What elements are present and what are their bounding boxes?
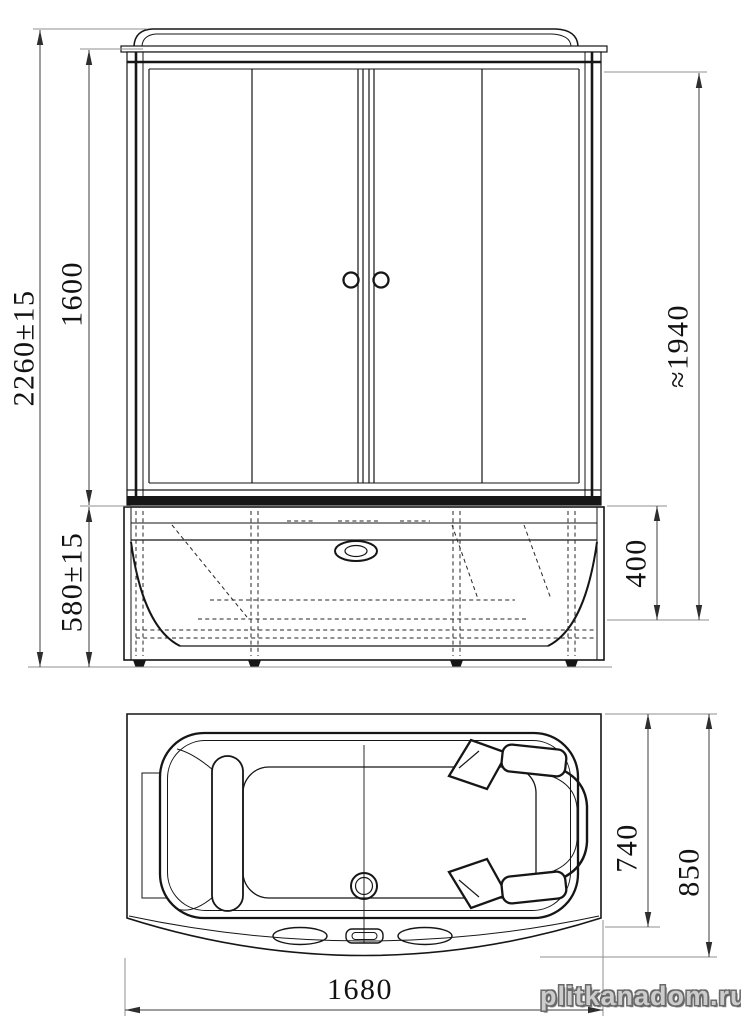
site-watermark: plitkanadom.ru: [540, 981, 741, 1012]
arrowhead: [37, 652, 43, 667]
roof-inner-line: [142, 34, 571, 46]
tub-foot: [133, 660, 146, 667]
arrowhead: [696, 605, 702, 620]
arrowhead: [645, 714, 651, 729]
cabin-frame: [127, 52, 601, 505]
arrowhead: [654, 506, 660, 521]
tub-foot: [450, 660, 463, 667]
arrowhead: [125, 1007, 140, 1013]
tub-front-view: [124, 507, 604, 667]
drawing-sheet: 2260±15 1600 580±15 ≈1940 400 740 850 16…: [0, 0, 741, 1024]
front-view: [121, 29, 607, 667]
arrowhead: [654, 605, 660, 620]
headrest-pad-bottom: [501, 871, 567, 905]
arrowhead: [86, 490, 92, 505]
dim-label-tray-height: 580±15: [56, 532, 89, 632]
roof-outline: [134, 29, 578, 46]
dim-label-cabin-height: 1600: [56, 261, 89, 327]
arrowhead: [706, 942, 712, 957]
dim-label-overall-width: 1680: [327, 973, 393, 1006]
frame-bottom-rail: [127, 496, 601, 505]
dim-label-inner-height: ≈1940: [662, 304, 695, 388]
arrowhead: [645, 912, 651, 927]
dim-label-tray-rim-depth: 400: [620, 538, 653, 588]
tub-foot: [248, 660, 261, 667]
roof-cap: [121, 46, 607, 52]
dim-label-overall-height: 2260±15: [8, 290, 41, 407]
arrowhead: [696, 73, 702, 88]
arrowhead: [86, 50, 92, 65]
arrowhead: [86, 507, 92, 522]
arrowhead: [86, 652, 92, 667]
arrowhead: [37, 30, 43, 45]
dim-label-tub-depth: 740: [611, 823, 644, 873]
arrowhead: [706, 714, 712, 729]
roof: [121, 29, 607, 52]
headrest-pad-top: [501, 744, 567, 778]
plan-view: [127, 714, 601, 956]
dim-label-overall-depth: 850: [673, 847, 706, 897]
tub-outline: [124, 507, 604, 660]
tub-foot: [565, 660, 578, 667]
frame-outline: [127, 52, 601, 505]
technical-drawing-canvas: 2260±15 1600 580±15 ≈1940 400 740 850 16…: [0, 0, 741, 1024]
